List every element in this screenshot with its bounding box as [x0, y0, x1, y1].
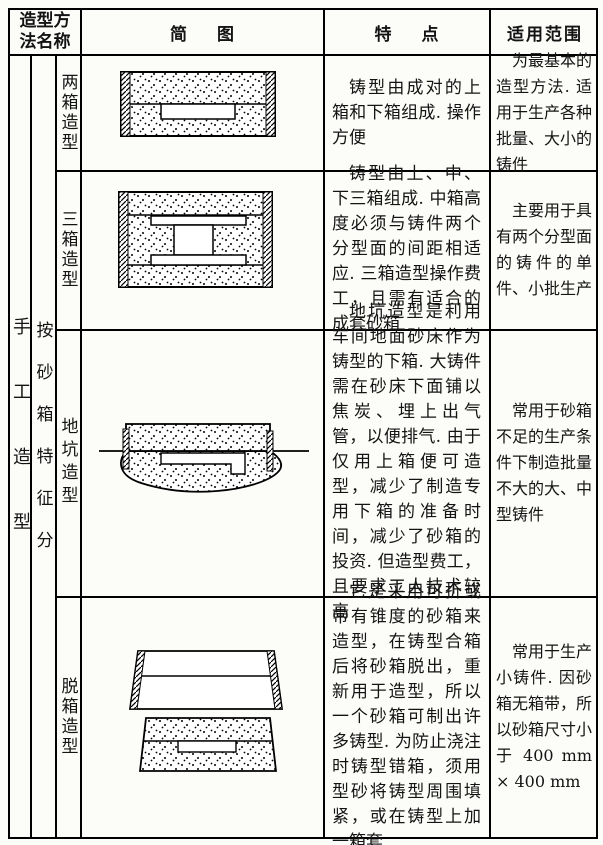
header-scope-label: 适用范围	[507, 20, 583, 45]
header-method-line1: 造型方	[20, 11, 71, 32]
method-name: 脱箱造型	[56, 677, 81, 757]
row-name-cell: 脱箱造型	[56, 597, 80, 837]
diagram-cell	[81, 597, 323, 837]
removable-flask-mold-diagram	[81, 597, 323, 837]
subcategory-label: 按砂箱特征分	[31, 321, 56, 573]
pit-mold-diagram	[81, 330, 323, 595]
features-text: 铸型由成对的上箱和下箱组成. 操作方便	[324, 76, 489, 151]
row-name-cell: 三箱造型	[56, 171, 80, 328]
method-name: 三箱造型	[56, 210, 81, 290]
scope-cell: 常用于生产小铸件. 因砂箱无箱带，所以砂箱尺寸小于 400 mm × 400 m…	[490, 597, 598, 837]
scope-text: 为最基本的造型方法. 适用于生产各种批量、大小的铸件	[490, 48, 598, 178]
category-cell: 手工造型	[10, 56, 30, 837]
two-box-mold-diagram	[81, 56, 323, 170]
header-diagram-column: 简图	[81, 10, 323, 54]
scope-text: 主要用于具有两个分型面的铸件的单件、小批生产	[490, 198, 598, 302]
diagram-cell	[81, 171, 323, 328]
method-name: 两箱造型	[56, 73, 81, 153]
diagram-cell	[81, 56, 323, 170]
diagram-cell	[81, 330, 323, 595]
features-text: 它是采用可折或带有锥度的砂箱来造型，在铸型合箱后将砂箱脱出，重新用于造型，所以一…	[324, 580, 489, 845]
method-name: 地坑造型	[56, 417, 81, 509]
scope-cell: 主要用于具有两个分型面的铸件的单件、小批生产	[490, 171, 598, 328]
scope-cell: 为最基本的造型方法. 适用于生产各种批量、大小的铸件	[490, 56, 598, 170]
header-diagram-label: 简图	[170, 20, 264, 45]
header-features-column: 特点	[324, 10, 489, 54]
subcategory-cell: 按砂箱特征分	[31, 56, 55, 837]
header-features-label: 特点	[375, 20, 469, 45]
row-name-cell: 地坑造型	[56, 330, 80, 595]
category-label: 手工造型	[7, 317, 33, 577]
three-box-mold-diagram	[81, 171, 323, 328]
features-text: 地坑造型是利用车间地面砂床作为铸型的下箱. 大铸件需在砂床下面铺以焦炭、埋上出气…	[324, 300, 489, 625]
header-method-column: 造型方 法名称	[10, 10, 80, 54]
features-cell: 它是采用可折或带有锥度的砂箱来造型，在铸型合箱后将砂箱脱出，重新用于造型，所以一…	[324, 597, 489, 837]
casting-methods-table-page: 造型方 法名称 简图 特点 适用范围 手工造型 按砂箱特征分 两箱造型	[0, 0, 603, 845]
scope-text: 常用于生产小铸件. 因砂箱无箱带，所以砂箱尺寸小于 400 mm × 400 m…	[490, 639, 598, 795]
features-cell: 地坑造型是利用车间地面砂床作为铸型的下箱. 大铸件需在砂床下面铺以焦炭、埋上出气…	[324, 330, 489, 595]
scope-cell: 常用于砂箱不足的生产条件下制造批量不大的大、中型铸件	[490, 330, 598, 595]
scope-text: 常用于砂箱不足的生产条件下制造批量不大的大、中型铸件	[490, 398, 598, 528]
row-name-cell: 两箱造型	[56, 56, 80, 170]
header-method-line2: 法名称	[20, 32, 71, 53]
features-cell: 铸型由成对的上箱和下箱组成. 操作方便	[324, 56, 489, 170]
